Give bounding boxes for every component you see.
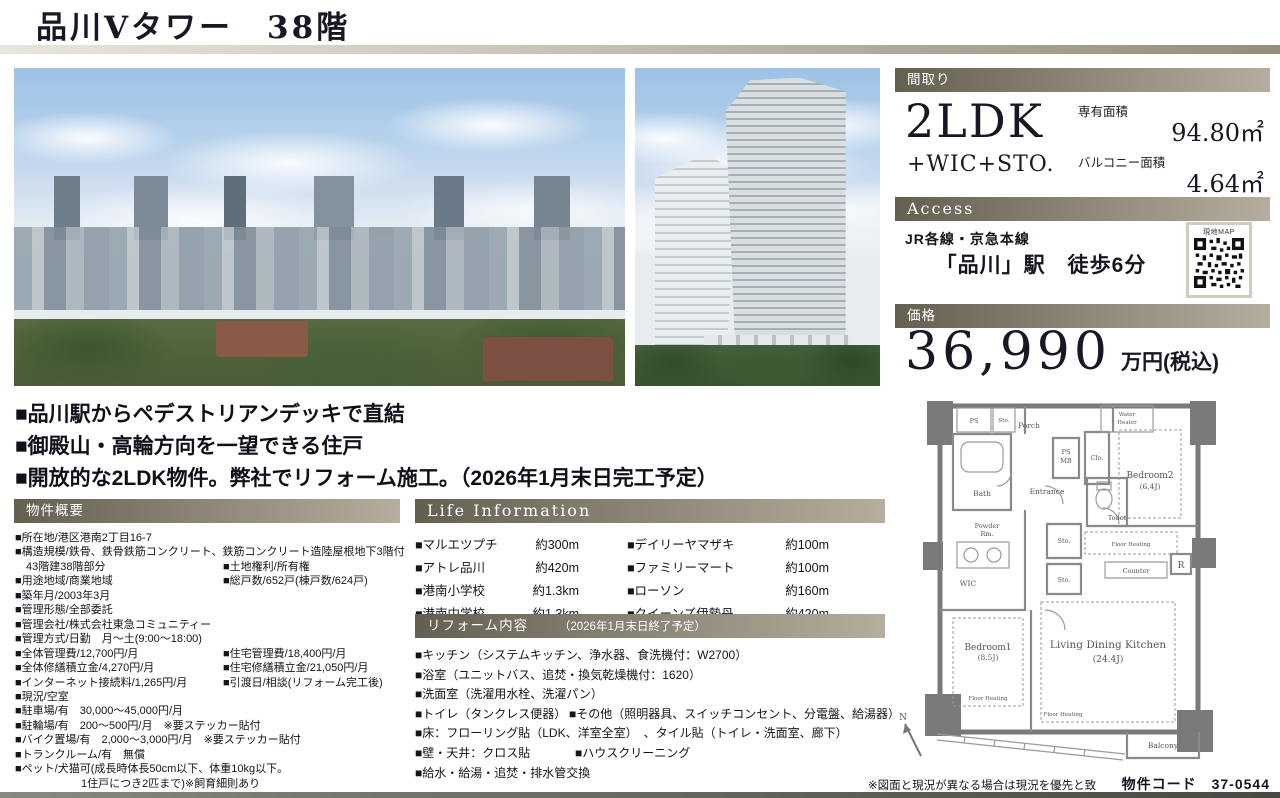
overview-row: ■現況/空室 (15, 690, 407, 704)
overview-item: ■土地権利/所有権 (223, 560, 407, 574)
reform-header-label: リフォーム内容 (427, 618, 528, 633)
label-floor-heating: Floor Heating (1044, 712, 1083, 718)
brick-building (216, 321, 308, 357)
brick-building (483, 337, 613, 381)
room-label-bedroom1: Bedroom1 (964, 643, 1011, 653)
price-row: 36,990 万円(税込) (905, 322, 1219, 382)
room-label-balcony: Balcony (1148, 741, 1179, 750)
overview-row: ■構造規模/鉄骨、鉄骨鉄筋コンクリート、鉄筋コンクリート造陸屋根地下3階付 (15, 545, 407, 559)
room-label-sto: Sto. (1058, 537, 1071, 545)
exclusive-area-label: 専有面積 (1078, 101, 1264, 120)
title-divider (0, 45, 1280, 54)
overview-row: ■管理方式/日勤 月～土(9:00～18:00) (15, 632, 407, 646)
label-floor-heating: Floor Heating (1112, 542, 1151, 548)
overview-row: ■駐車場/有 30,000～45,000円/月 (15, 704, 407, 718)
overview-row: ■築年月/2003年3月 (15, 589, 407, 603)
room-label-ps: PS (970, 417, 979, 425)
label-floor-heating: Floor Heating (969, 696, 1008, 702)
trees (635, 345, 880, 386)
station-walk-time: 「品川」駅 徒歩6分 (905, 249, 1177, 279)
overview-row: 1住戸につき2匹まで)※飼育細則あり (15, 777, 407, 791)
life-gap (579, 534, 627, 553)
room-label-bedroom2-size: (6.4J) (1140, 482, 1161, 491)
room-label-sto: Sto. (1058, 576, 1071, 584)
exclusive-area-value: 94.80㎡ (1078, 120, 1264, 146)
highlights: ■品川駅からペデストリアンデッキで直結 ■御殿山・高輪方向を一望できる住戸 ■開… (15, 399, 785, 495)
reform-item: ■床：フローリング貼（LDK、洋室全室） 、タイル貼（トイレ・洗面室、廊下） (415, 724, 900, 744)
area-block: 専有面積 94.80㎡ バルコニー面積 4.64㎡ (1078, 101, 1264, 204)
overview-row: ■管理会社/株式会社東急コミュニティー (15, 618, 407, 632)
map-label: 現地MAP (1203, 227, 1235, 237)
overview-item: ■用途地域/商業地域 (15, 574, 223, 588)
room-label-porch: Porch (1018, 421, 1040, 430)
overview-item: 43階建38階部分 (15, 560, 223, 574)
life-info-section-header: Life Information (415, 499, 885, 523)
compass: N (899, 713, 921, 756)
room-label-bedroom1-size: (8.5J) (978, 653, 999, 662)
room-label-toilet: Toilet (1108, 514, 1127, 522)
room-label-powder: Powder (975, 522, 1001, 530)
overview-item: ■総戸数/652戸(棟戸数/624戸) (223, 574, 407, 588)
access-section-header: Access (895, 197, 1270, 221)
price-amount: 36,990 (905, 322, 1111, 382)
life-distance: 約300m (523, 534, 579, 553)
side-building (655, 154, 738, 358)
life-distance: 約100m (779, 557, 829, 576)
overview-row: ■駐輪場/有 200～500円/月 ※要ステッカー貼付 (15, 719, 407, 733)
room-label-powder: Rm. (980, 530, 993, 538)
price-unit: 万円(税込) (1121, 346, 1219, 376)
room-label-bedroom2: Bedroom2 (1126, 471, 1173, 481)
reform-item: ■給水・給湯・追焚・排水管交換 (415, 764, 900, 784)
overview-row: ■インターネット接続料/1,265円/月 ■引渡日/相談(リフォーム完工後) (15, 676, 407, 690)
reform-item: ■浴室（ユニットバス、追焚・換気乾燥機付：1620） (415, 666, 900, 686)
life-info-list: ■マルエツプチ 約300m ■デイリーヤマザキ 約100m ■アトレ品川 約42… (415, 534, 885, 622)
overview-section-header: 物件概要 (14, 499, 400, 523)
reform-item: ■ハウスクリーニング (575, 744, 900, 764)
highlight-line: ■御殿山・高輪方向を一望できる住戸 (15, 431, 785, 463)
room-label-ps-mb: PS (1062, 448, 1071, 456)
overview-row: ■ペット/犬猫可(成長時体長50cm以下、体重10kg以下。 (15, 762, 407, 776)
photo-city-view (14, 68, 625, 386)
madori-header-label: 間取り (907, 72, 951, 87)
overview-item: ■住宅管理費/18,400円/月 (223, 647, 407, 661)
life-place: ■アトレ品川 (415, 557, 523, 576)
reform-item: ■壁・天井：クロス貼 (415, 744, 575, 764)
life-place: ■ファミリーマート (627, 557, 779, 576)
overview-list: ■所在地/港区港南2丁目16-7 ■構造規模/鉄骨、鉄骨鉄筋コンクリート、鉄筋コ… (15, 531, 407, 791)
overview-item: ■ペット/犬猫可(成長時体長50cm以下、体重10kg以下。 (15, 762, 407, 776)
overview-item: ■駐車場/有 30,000～45,000円/月 (15, 704, 407, 718)
flyer-page: 品川Vタワー 38階 間取り 2LDK +WIC+STO. 専有面積 94.80… (0, 0, 1280, 798)
overview-item: 1住戸につき2匹まで)※飼育細則あり (15, 777, 407, 791)
room-label-water-heater: Water (1119, 412, 1136, 418)
reform-item: ■その他（照明器具、スイッチコンセント、分電盤、給湯器） (569, 705, 900, 725)
overview-row: ■バイク置場/有 2,000～3,000円/月 ※要ステッカー貼付 (15, 733, 407, 747)
reform-item: ■洗面室（洗濯用水栓、洗濯パン） (415, 685, 900, 705)
highlight-line: ■開放的な2LDK物件。弊社でリフォーム施工。（2026年1月末日完工予定） (15, 463, 785, 495)
room-label-wic: WIC (960, 579, 977, 588)
floor-plan: N PS Sto. Porch PS MB Clo. Water Heater … (895, 396, 1270, 768)
page-title: 品川Vタワー 38階 (36, 2, 350, 47)
overview-item: ■全体管理費/12,700円/月 (15, 647, 223, 661)
life-place: ■デイリーヤマザキ (627, 534, 779, 553)
layout-type: 2LDK (905, 98, 1044, 144)
life-distance: 約1.3km (523, 580, 579, 599)
reform-row: ■浴室（ユニットバス、追焚・換気乾燥機付：1620） (415, 666, 900, 686)
access-header-label: Access (907, 199, 974, 218)
balcony-area-label: バルコニー面積 (1078, 152, 1264, 171)
reform-row: ■キッチン（システムキッチン、浄水器、食洗機付：W2700） (415, 646, 900, 666)
room-label-bath: Bath (973, 489, 991, 498)
qr-code (1194, 238, 1244, 288)
property-code: 物件コード 37-0544 (1122, 774, 1270, 794)
overview-row: 43階建38階部分 ■土地権利/所有権 (15, 560, 407, 574)
overview-item: ■築年月/2003年3月 (15, 589, 407, 603)
overview-header-label: 物件概要 (26, 503, 84, 518)
overview-row: ■管理形態/全部委託 (15, 603, 407, 617)
overview-item: ■バイク置場/有 2,000～3,000円/月 ※要ステッカー貼付 (15, 733, 407, 747)
room-label-ldk-size: (24.4J) (1093, 654, 1124, 665)
rail-lines: JR各線・京急本線 (905, 229, 1030, 249)
overview-item: ■管理会社/株式会社東急コミュニティー (15, 618, 407, 632)
overview-item: ■住宅修繕積立金/21,050円/月 (223, 661, 407, 675)
reform-item: ■トイレ（タンクレス便器） (415, 705, 569, 725)
overview-item: ■現況/空室 (15, 690, 407, 704)
overview-item: ■引渡日/相談(リフォーム完工後) (223, 676, 407, 690)
reform-header-note: （2026年1月末日終了予定） (559, 621, 706, 633)
overview-row: ■トランクルーム/有 無償 (15, 748, 407, 762)
overview-item: ■所在地/港区港南2丁目16-7 (15, 531, 407, 545)
overview-item: ■インターネット接続料/1,265円/月 (15, 676, 223, 690)
reform-row: ■壁・天井：クロス貼 ■ハウスクリーニング (415, 744, 900, 764)
overview-row: ■全体修繕積立金/4,270円/月 ■住宅修繕積立金/21,050円/月 (15, 661, 407, 675)
main-tower (723, 78, 846, 358)
compass-n-label: N (899, 713, 907, 723)
label-refrigerator: R (1178, 561, 1185, 571)
overview-item: ■管理形態/全部委託 (15, 603, 407, 617)
life-distance: 約160m (779, 580, 829, 599)
room-label-closet: Clo. (1091, 454, 1104, 462)
layout-type-sub: +WIC+STO. (907, 152, 1055, 177)
life-distance: 約420m (523, 557, 579, 576)
overview-item: ■駐輪場/有 200～500円/月 ※要ステッカー貼付 (15, 719, 407, 733)
room-label-ldk: Living Dining Kitchen (1050, 639, 1166, 651)
overview-item: ■全体修繕積立金/4,270円/月 (15, 661, 223, 675)
room-label-sto: Sto. (999, 418, 1010, 424)
city-skyline (14, 227, 625, 310)
life-place: ■マルエツプチ (415, 534, 523, 553)
overview-item: ■トランクルーム/有 無償 (15, 748, 407, 762)
balcony-area-value: 4.64㎡ (1078, 171, 1264, 197)
map-qr-box: 現地MAP (1186, 222, 1252, 298)
bottom-divider (0, 792, 1280, 798)
label-counter: Counter (1123, 567, 1151, 575)
overview-row: ■用途地域/商業地域 ■総戸数/652戸(棟戸数/624戸) (15, 574, 407, 588)
life-place: ■ローソン (627, 580, 779, 599)
overview-row: ■全体管理費/12,700円/月 ■住宅管理費/18,400円/月 (15, 647, 407, 661)
reform-row: ■トイレ（タンクレス便器） ■その他（照明器具、スイッチコンセント、分電盤、給湯… (415, 705, 900, 725)
reform-row: ■給水・給湯・追焚・排水管交換 (415, 764, 900, 784)
life-info-header-label: Life Information (427, 501, 591, 520)
madori-section-header: 間取り (895, 68, 1270, 92)
reform-row: ■洗面室（洗濯用水栓、洗濯パン） (415, 685, 900, 705)
room-label-water-heater: Heater (1117, 420, 1137, 426)
life-distance: 約100m (779, 534, 829, 553)
life-place: ■港南小学校 (415, 580, 523, 599)
overview-item: ■構造規模/鉄骨、鉄骨鉄筋コンクリート、鉄筋コンクリート造陸屋根地下3階付 (15, 545, 407, 559)
photo-tower-exterior (635, 68, 880, 386)
reform-section-header: リフォーム内容 （2026年1月末日終了予定） (415, 614, 885, 638)
reform-row: ■床：フローリング貼（LDK、洋室全室） 、タイル貼（トイレ・洗面室、廊下） (415, 724, 900, 744)
life-gap (579, 557, 627, 576)
room-label-ps-mb: MB (1060, 457, 1072, 465)
life-gap (579, 580, 627, 599)
room-label-entrance: Entrance (1030, 487, 1065, 496)
reform-item: ■キッチン（システムキッチン、浄水器、食洗機付：W2700） (415, 646, 900, 666)
overview-item: ■管理方式/日勤 月～土(9:00～18:00) (15, 632, 407, 646)
highlight-line: ■品川駅からペデストリアンデッキで直結 (15, 399, 785, 431)
reform-list: ■キッチン（システムキッチン、浄水器、食洗機付：W2700） ■浴室（ユニットバ… (415, 646, 900, 783)
overview-row: ■所在地/港区港南2丁目16-7 (15, 531, 407, 545)
price-header-label: 価格 (907, 308, 936, 323)
